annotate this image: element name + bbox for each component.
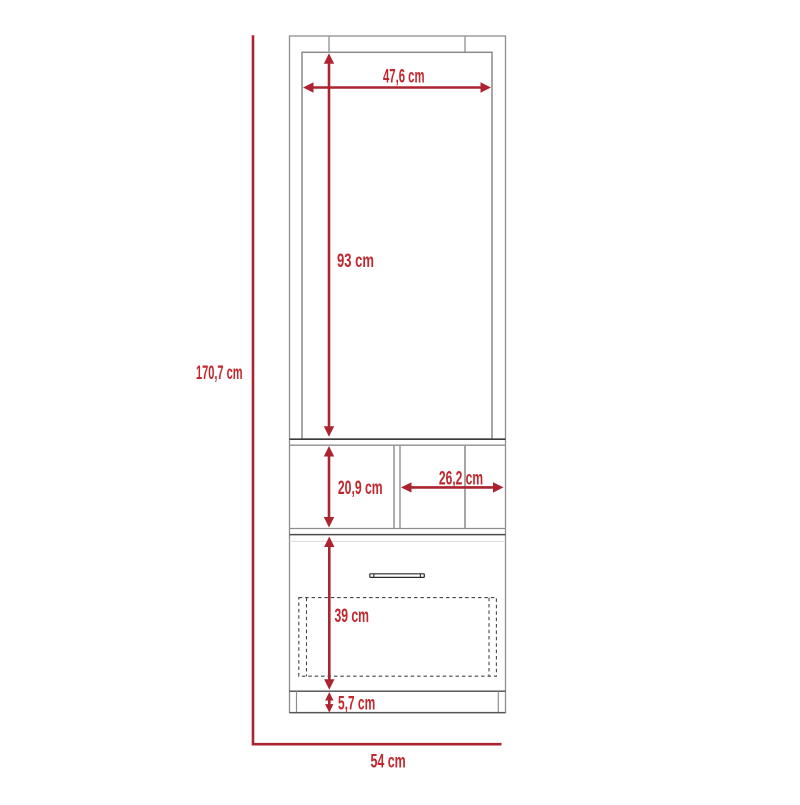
svg-text:26,2 cm: 26,2 cm [439,467,483,489]
svg-text:5,7 cm: 5,7 cm [338,693,375,715]
svg-text:170,7 cm: 170,7 cm [196,362,243,384]
svg-text:93 cm: 93 cm [337,250,374,272]
svg-text:54 cm: 54 cm [371,751,406,773]
svg-text:39 cm: 39 cm [335,605,370,627]
svg-text:20,9 cm: 20,9 cm [338,477,383,499]
svg-text:47,6 cm: 47,6 cm [383,66,425,88]
